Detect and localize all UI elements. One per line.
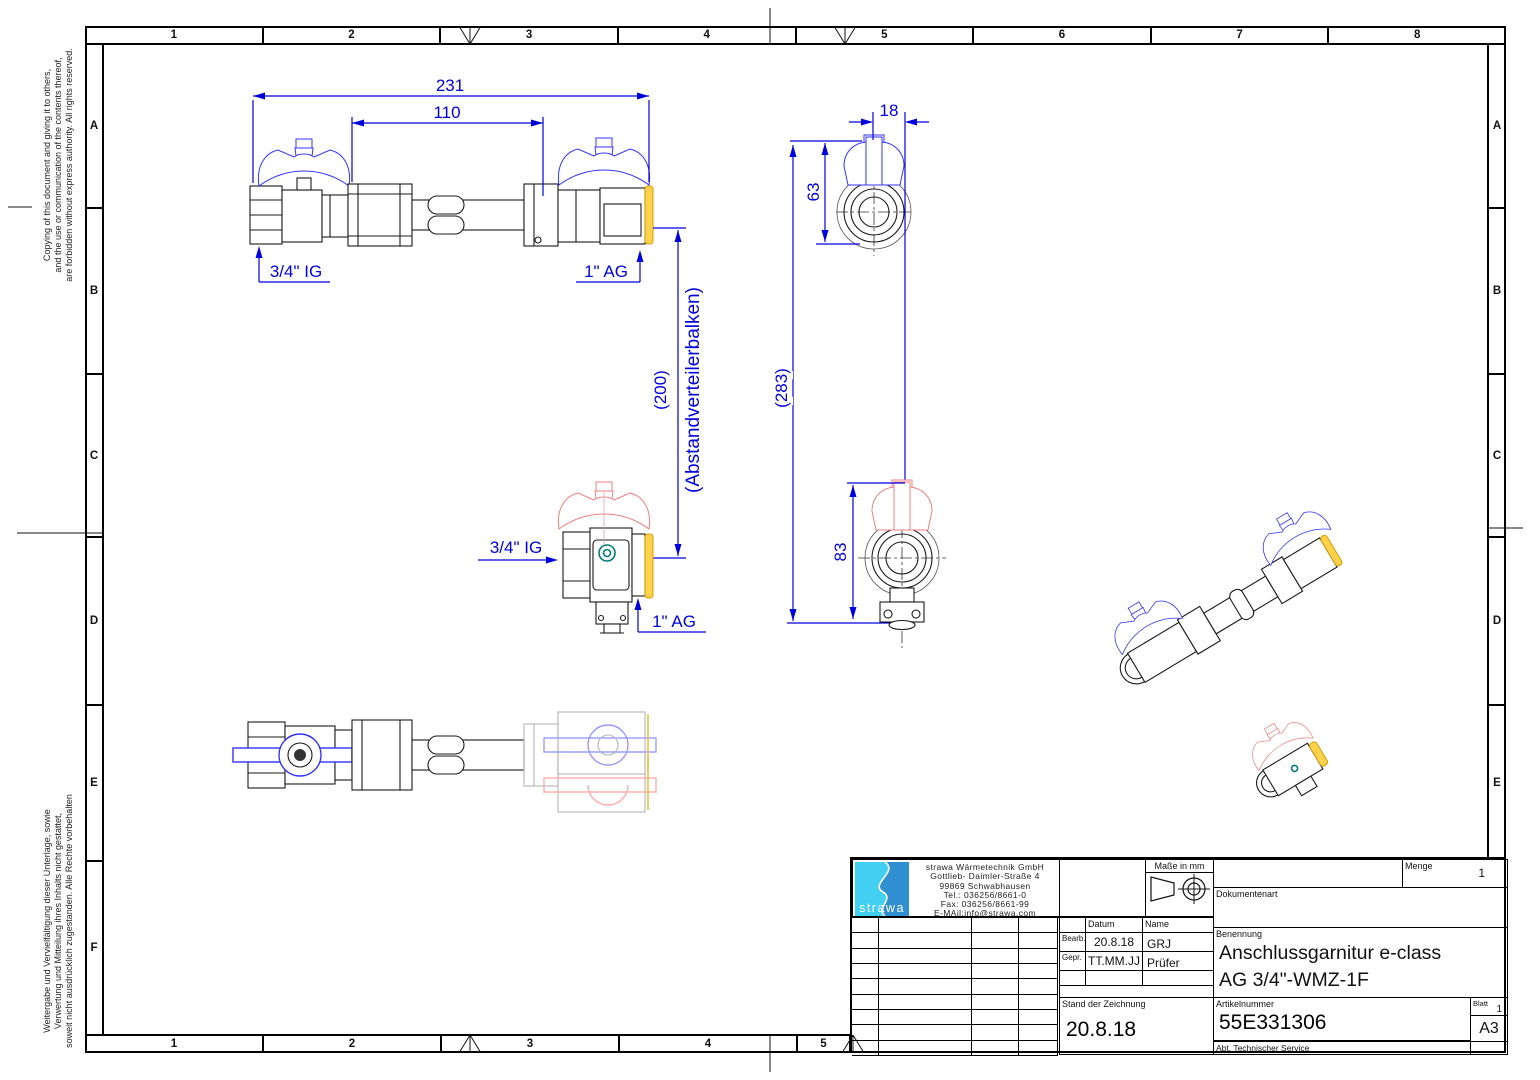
units-cell: Maße in mm xyxy=(1145,859,1214,917)
empty-cell xyxy=(1059,859,1146,917)
grid-row-label: E xyxy=(85,705,103,861)
quantity-value: 1 xyxy=(1478,866,1485,880)
grid-row-label: F xyxy=(85,861,103,1035)
format-cell: A3 xyxy=(1470,1015,1508,1042)
copyright-notice-en: Copying of this document and giving it t… xyxy=(42,30,75,300)
empty-cell xyxy=(1213,859,1403,888)
empty-cell xyxy=(1085,970,1143,986)
grid-row-label: D xyxy=(85,537,103,705)
grid-band-bottom: 1 2 3 4 5 xyxy=(85,1035,850,1053)
article-number-cell: Artikelnummer 55E331306 xyxy=(1213,997,1471,1041)
revision-table xyxy=(852,917,1060,1055)
designation-line1: Anschlussgarnitur e-class xyxy=(1214,940,1507,965)
grid-row-label: C xyxy=(85,374,103,537)
sheet-cell: Blatt 1 xyxy=(1470,997,1508,1016)
bearb-name-cell: GRJ xyxy=(1142,932,1214,952)
gepr-name-cell: Prüfer xyxy=(1142,951,1214,971)
date-header-cell: Datum xyxy=(1085,917,1143,933)
grid-column-label: 3 xyxy=(441,1035,619,1053)
grid-column-label: 1 xyxy=(85,1035,263,1053)
sheet-value: 1 xyxy=(1496,1004,1502,1015)
empty-cell xyxy=(1059,917,1086,933)
gepr-label-cell: Gepr. xyxy=(1059,951,1086,971)
article-number-label: Artikelnummer xyxy=(1214,998,1470,1010)
grid-column-label: 5 xyxy=(796,26,974,44)
copyright-line: are forbidden without express authority.… xyxy=(64,30,75,300)
document-type-cell: Dokumentenart xyxy=(1213,887,1508,928)
drawing-status-label: Stand der Zeichnung xyxy=(1060,998,1213,1010)
designation-line2: AG 3/4"-WMZ-1F xyxy=(1214,965,1507,992)
grid-row-label: C xyxy=(1488,374,1506,537)
article-number-value: 55E331306 xyxy=(1214,1010,1470,1035)
grid-column-label: 8 xyxy=(1328,26,1506,44)
gepr-date-cell: TT.MM.JJ xyxy=(1085,951,1143,971)
designation-label: Benennung xyxy=(1214,928,1507,940)
copyright-line: Copying of this document and giving it t… xyxy=(42,30,53,300)
copyright-line: Weitergabe und Vervielfältigung dieser U… xyxy=(42,777,53,1065)
grid-column-label: 3 xyxy=(440,26,618,44)
quantity-label: Menge xyxy=(1403,860,1435,872)
grid-row-label: A xyxy=(1488,44,1506,208)
grid-column-label: 7 xyxy=(1151,26,1329,44)
bearb-label: Bearb. xyxy=(1060,933,1085,944)
units-label: Maße in mm xyxy=(1146,860,1213,873)
company-cell: strawa strawa Wärmetechnik GmbH Gottlieb… xyxy=(852,859,1060,917)
strawa-logo-icon: strawa xyxy=(855,862,909,916)
quantity-cell: Menge 1 xyxy=(1402,859,1508,888)
grid-column-label: 6 xyxy=(973,26,1151,44)
grid-column-label: 2 xyxy=(263,26,441,44)
grid-row-label: B xyxy=(1488,208,1506,374)
empty-cell xyxy=(1142,970,1214,986)
sheet-label: Blatt xyxy=(1471,998,1490,1009)
logo-wordmark: strawa xyxy=(859,901,905,915)
designation-cell: Benennung Anschlussgarnitur e-class AG 3… xyxy=(1213,927,1508,998)
name-header-cell: Name xyxy=(1142,917,1214,933)
copyright-line: and the use or communication of the cont… xyxy=(53,30,64,300)
grid-column-label: 1 xyxy=(85,26,263,44)
empty-cell xyxy=(1059,970,1086,986)
document-type-label: Dokumentenart xyxy=(1214,888,1507,900)
grid-row-label: A xyxy=(85,44,103,208)
company-line: E-MAil:info@strawa.com xyxy=(911,909,1059,917)
bearb-label-cell: Bearb. xyxy=(1059,932,1086,952)
grid-band-left: A B C D E F xyxy=(85,44,103,1035)
empty-cell xyxy=(1470,1041,1508,1055)
grid-column-label: 4 xyxy=(619,1035,797,1053)
title-block: strawa strawa Wärmetechnik GmbH Gottlieb… xyxy=(850,857,1506,1053)
first-angle-projection-icon xyxy=(1148,873,1212,907)
department-cell: Abt. Technischer Service xyxy=(1213,1041,1471,1055)
date-header: Datum xyxy=(1086,918,1142,930)
grid-row-label: D xyxy=(1488,537,1506,705)
department-label: Abt. Technischer Service xyxy=(1214,1042,1470,1054)
copyright-line: Verwertung und Mitteilung ihres Inhalts … xyxy=(53,777,64,1065)
gepr-label: Gepr. xyxy=(1060,952,1085,963)
copyright-line: soweit nicht ausdrücklich zugestanden. A… xyxy=(64,777,75,1065)
name-header: Name xyxy=(1143,918,1213,930)
grid-column-label: 2 xyxy=(263,1035,441,1053)
grid-band-top: 1 2 3 4 5 6 7 8 xyxy=(85,26,1506,44)
drawing-status-value: 20.8.18 xyxy=(1060,1010,1213,1042)
grid-column-label: 5 xyxy=(797,1035,850,1053)
drawing-status-cell: Stand der Zeichnung 20.8.18 xyxy=(1059,997,1214,1055)
grid-row-label: B xyxy=(85,208,103,374)
grid-row-label: E xyxy=(1488,705,1506,861)
grid-column-label: 4 xyxy=(618,26,796,44)
bearb-date-cell: 20.8.18 xyxy=(1085,932,1143,952)
copyright-notice-de: Weitergabe und Vervielfältigung dieser U… xyxy=(42,777,75,1065)
company-address: strawa Wärmetechnik GmbH Gottlieb- Daiml… xyxy=(911,860,1059,916)
